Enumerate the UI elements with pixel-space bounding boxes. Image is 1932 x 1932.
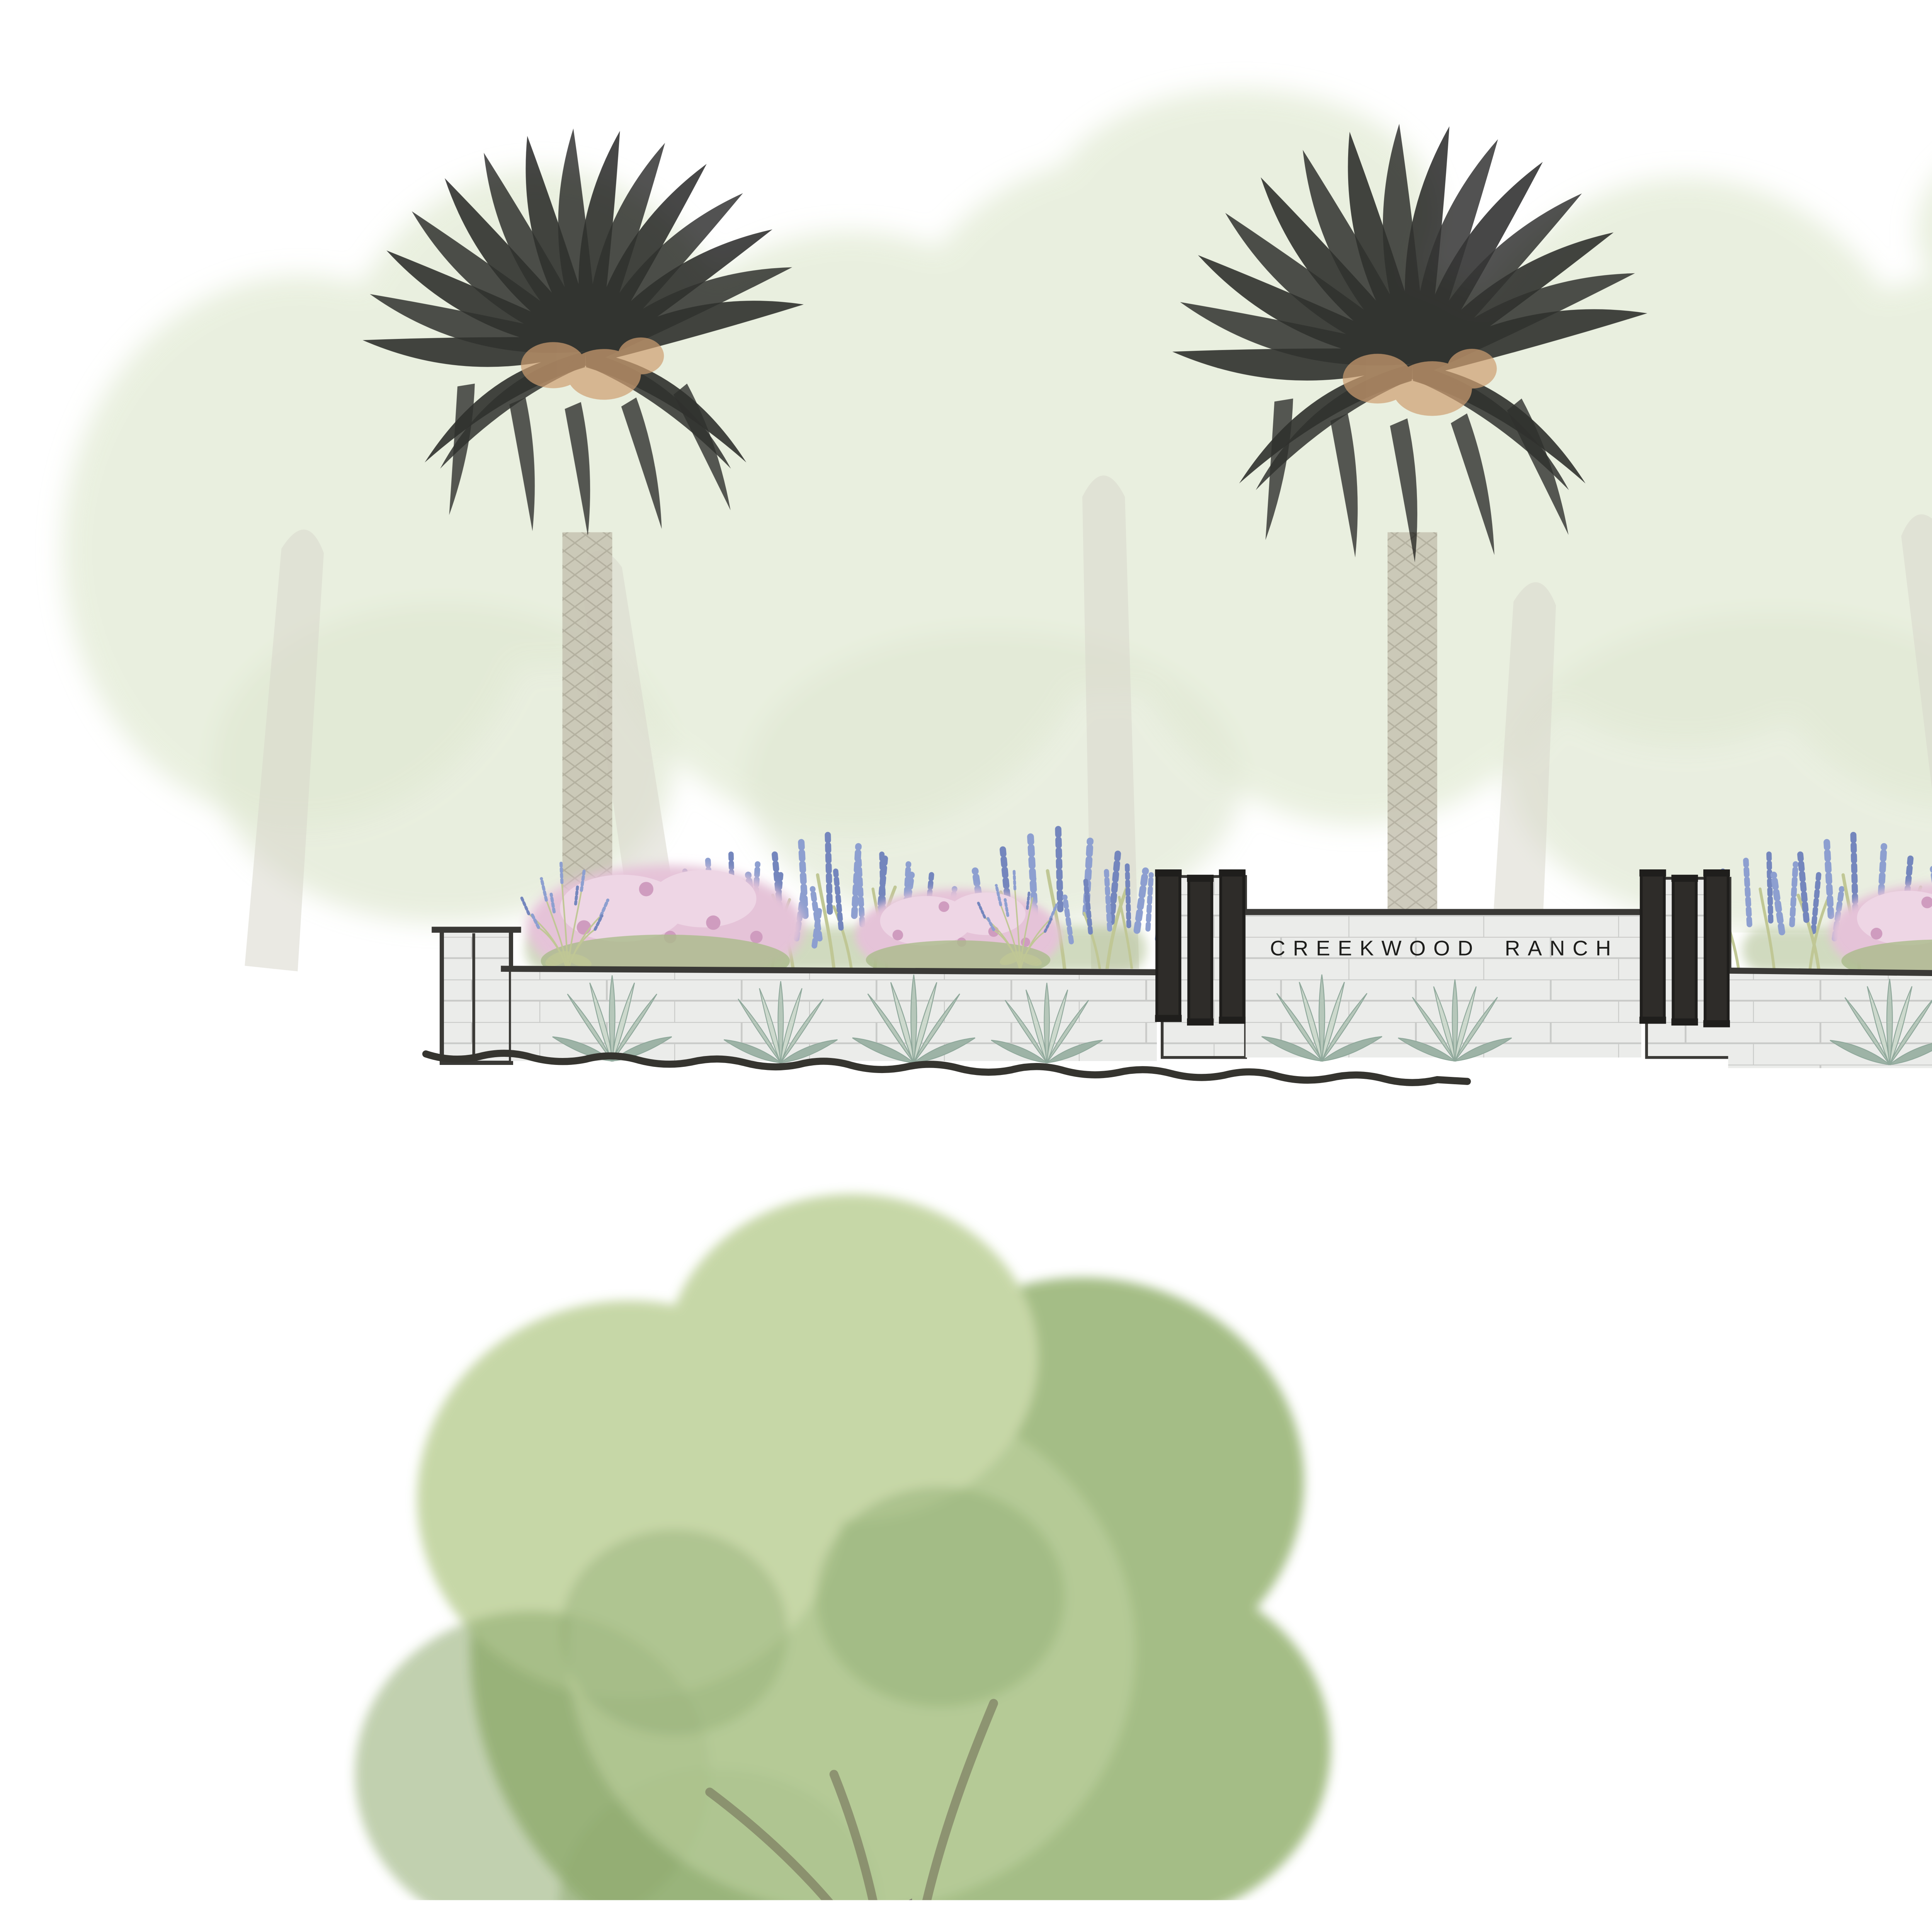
steel-pylons-right <box>1639 869 1730 1027</box>
steel-pylons-left <box>1155 869 1245 1026</box>
landscape-elevation-rendering: CREEKWOOD RANCH <box>0 0 1932 1932</box>
entry-sign-panel: CREEKWOOD RANCH <box>1237 912 1650 1058</box>
wall-pier-left <box>435 930 518 1063</box>
entry-sign-text: CREEKWOOD RANCH <box>1270 936 1619 960</box>
street-elevation-scene: CREEKWOOD RANCH <box>62 89 1932 1083</box>
artboard: CREEKWOOD RANCH <box>0 0 1932 1932</box>
oak-tree-canopy <box>355 1194 1331 1932</box>
background-tree-canopy <box>62 89 1932 932</box>
monument-sign-scene: CREEKWOOD RANCH <box>149 1194 1369 1932</box>
